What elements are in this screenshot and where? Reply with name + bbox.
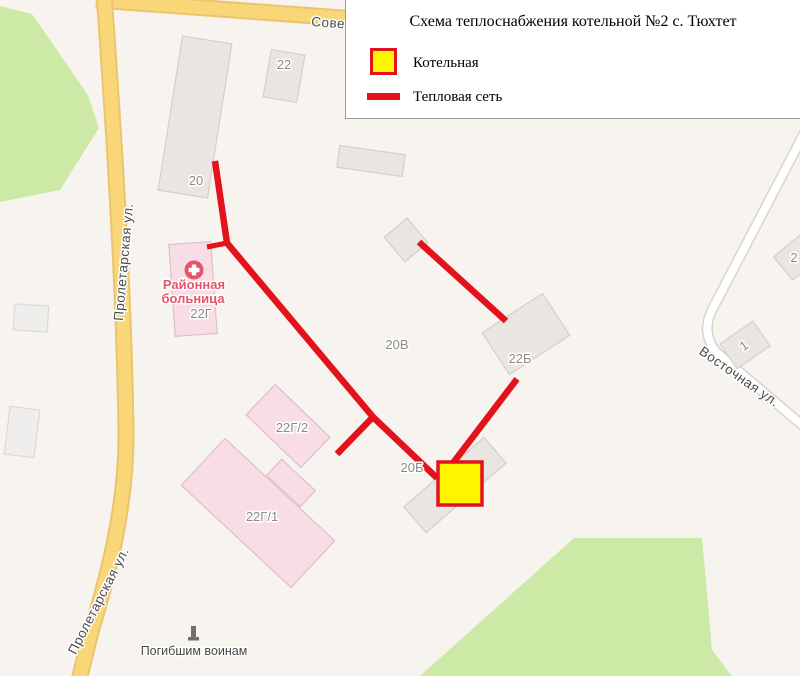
building-label-20b: 20Б [401, 460, 424, 475]
hospital-label-line1: Районная [163, 277, 225, 292]
memorial-obelisk-base [188, 637, 199, 641]
building-label-22g2: 22Г/2 [276, 420, 308, 435]
building-unlabeled-top [337, 146, 405, 177]
boiler-swatch-icon [370, 48, 397, 75]
building-label-2: 2 [790, 250, 797, 265]
heat-network [207, 161, 517, 478]
building-small-left-2 [4, 406, 40, 457]
legend-panel: Схема теплоснабжения котельной №2 с. Тюх… [345, 0, 800, 119]
heat-network-swatch-icon [367, 93, 400, 100]
building-small-left-1 [13, 304, 49, 332]
building-label-22g1: 22Г/1 [246, 509, 278, 524]
heat-line-22g2-branch [337, 417, 373, 454]
street-label-proletarskaya-bottom: Пролетарская ул. [65, 545, 132, 657]
memorial-label: Погибшим воинам [141, 644, 248, 658]
heat-line-22b-upper [419, 242, 506, 321]
hospital-label-line2: больница [161, 291, 225, 306]
memorial-poi[interactable]: Погибшим воинам [141, 626, 248, 658]
boiler-marker[interactable] [438, 462, 482, 505]
building-label-20v: 20В [385, 337, 408, 352]
building-label-22b: 22Б [509, 351, 532, 366]
building-label-20: 20 [189, 173, 203, 188]
heat-line-main-trunk [215, 161, 437, 478]
building-label-22: 22 [277, 57, 291, 72]
legend-label-boiler: Котельная [413, 55, 479, 72]
map-canvas[interactable]: 20 22 22Г 22Г/2 22Г/1 20В 20Б 22Б 1 2 Ра… [0, 0, 800, 676]
park-area-top-left [0, 6, 99, 202]
legend-title: Схема теплоснабжения котельной №2 с. Тюх… [346, 13, 800, 31]
memorial-obelisk-icon [191, 626, 196, 638]
legend-label-network: Тепловая сеть [413, 89, 502, 106]
building-label-22g: 22Г [190, 306, 212, 321]
hospital-cross-icon-v [192, 265, 197, 276]
park-area-bottom [420, 538, 732, 676]
